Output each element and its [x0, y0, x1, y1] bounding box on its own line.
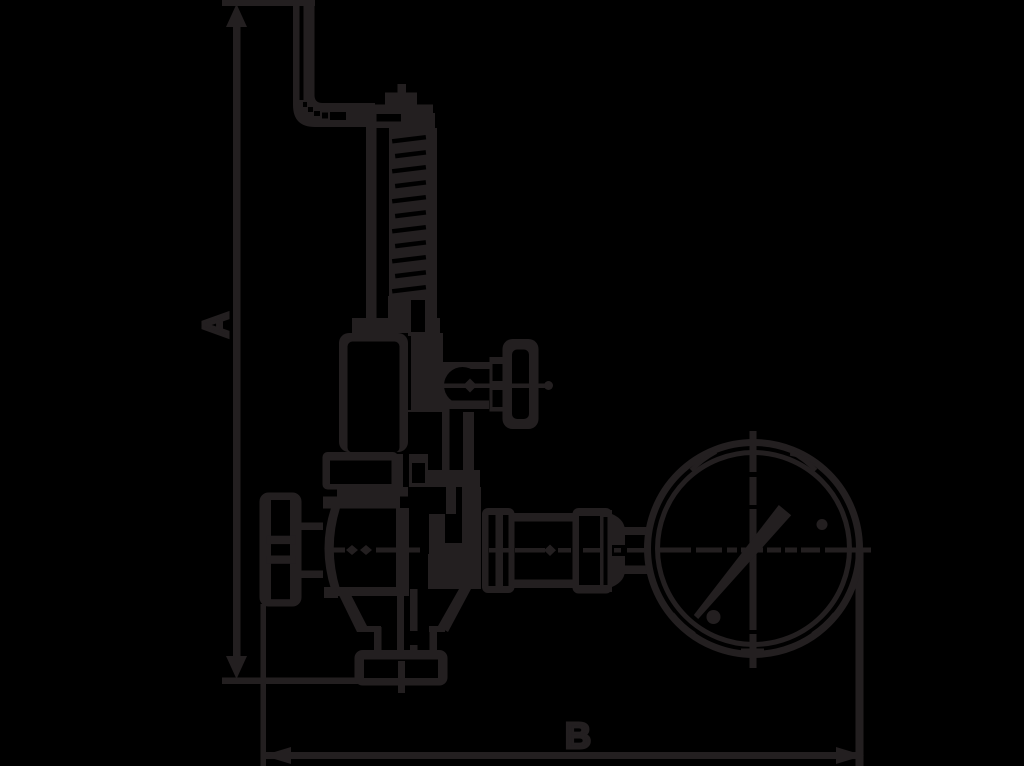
svg-text:B: B: [565, 715, 591, 756]
svg-text:A: A: [195, 312, 236, 338]
